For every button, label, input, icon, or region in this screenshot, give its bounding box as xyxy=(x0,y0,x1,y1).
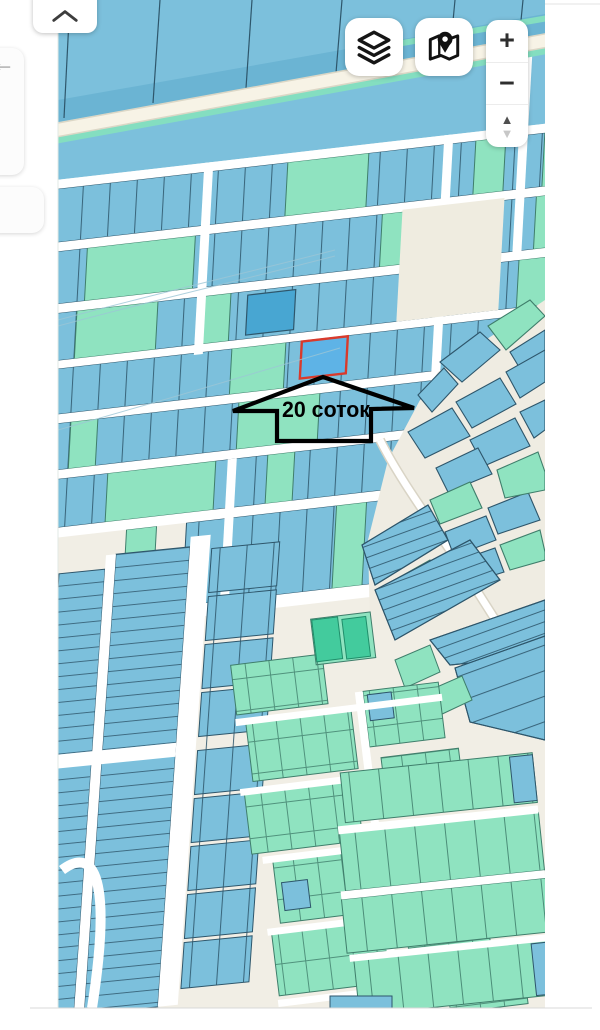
map-pin-icon xyxy=(425,28,463,66)
tilt-control[interactable]: ▲ ▼ xyxy=(486,104,528,147)
map-pin-button[interactable] xyxy=(415,18,473,76)
bottom-blank-area xyxy=(0,1008,600,1030)
bottom-right-rows xyxy=(328,753,557,1016)
tilt-down-icon[interactable]: ▼ xyxy=(501,127,514,140)
zoom-panel: + − ▲ ▼ xyxy=(486,20,528,147)
zoom-out-button[interactable]: − xyxy=(486,62,528,105)
collapse-panel-button[interactable] xyxy=(33,0,97,33)
layers-button[interactable] xyxy=(345,18,403,76)
dark-blue-parcel xyxy=(246,290,296,336)
tilt-up-icon[interactable]: ▲ xyxy=(501,113,514,126)
map-screen: 20 соток ← + − ▲ ▼ xyxy=(0,0,600,1030)
side-panel-stub-2 xyxy=(0,187,44,233)
back-button[interactable]: ← xyxy=(0,50,15,77)
chevron-up-icon xyxy=(45,1,85,31)
zoom-in-button[interactable]: + xyxy=(486,20,528,62)
map-tiles: 20 соток xyxy=(21,0,600,1030)
strip-columns xyxy=(26,528,281,1024)
map-canvas[interactable]: 20 соток xyxy=(0,0,600,1030)
right-blank-area xyxy=(545,0,600,1030)
side-panel-stub: ← xyxy=(0,48,24,175)
annotation-label: 20 соток xyxy=(282,397,371,422)
layers-icon xyxy=(355,28,393,66)
